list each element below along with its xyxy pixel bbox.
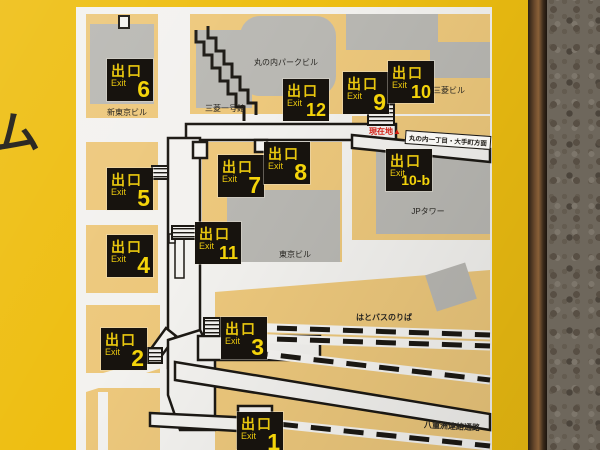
exit-badge-10: 出口Exit10 xyxy=(388,61,434,103)
exit-badge-5: 出口Exit5 xyxy=(107,168,153,210)
exit-number: 4 xyxy=(137,254,150,277)
exit-word-en: Exit xyxy=(241,431,256,441)
stub-exit7 xyxy=(193,142,207,158)
exit-number: 9 xyxy=(373,91,386,114)
exit-number: 5 xyxy=(137,187,150,210)
exit-number: 3 xyxy=(251,336,264,359)
building-label-marunouchi-park: 丸の内パークビル xyxy=(254,57,318,68)
exit-word-en: Exit xyxy=(222,174,237,184)
exit-number: 10-b xyxy=(401,173,430,187)
building-label-shintokyo: 新東京ビル xyxy=(107,107,147,118)
exit-number: 1 xyxy=(267,431,280,450)
exit-word-en: Exit xyxy=(111,78,126,88)
exit-badge-4: 出口Exit4 xyxy=(107,235,153,277)
exit-word-en: Exit xyxy=(199,241,214,251)
stairs-exit11 xyxy=(172,226,196,239)
exit-badge-8: 出口Exit8 xyxy=(264,142,310,184)
building-label-mitsubishi: 三菱ビル xyxy=(433,85,465,96)
exit-word-en: Exit xyxy=(287,98,302,108)
exit-word-en: Exit xyxy=(111,187,126,197)
building-label-ichigokan: 三菱一号館 xyxy=(205,103,245,114)
exit-word-en: Exit xyxy=(111,254,126,264)
area-label-hatobus: はとバスのりば xyxy=(356,312,412,323)
exit-number: 10 xyxy=(411,83,431,101)
exit-number: 12 xyxy=(306,101,326,119)
rooftop-detail xyxy=(119,16,129,28)
exit-word-en: Exit xyxy=(225,336,240,346)
building-shape-top-right xyxy=(346,14,438,50)
exit-badge-10b: 出口Exit10-b xyxy=(386,149,432,191)
exit-badge-1: 出口Exit1 xyxy=(237,412,283,450)
exit-word-en: Exit xyxy=(105,347,120,357)
exit-number: 2 xyxy=(131,347,144,370)
exit-badge-3: 出口Exit3 xyxy=(221,317,267,359)
exit-badge-12: 出口Exit12 xyxy=(283,79,329,121)
exit-badge-9: 出口Exit9 xyxy=(343,72,389,114)
exit-badge-6: 出口Exit6 xyxy=(107,59,153,101)
building-shape-mitsubishi xyxy=(430,42,490,78)
exit-number: 6 xyxy=(137,78,150,101)
stairs-exit5 xyxy=(152,166,168,179)
exit-number: 8 xyxy=(294,161,307,184)
exit-number: 7 xyxy=(248,174,261,197)
exit-word-en: Exit xyxy=(347,91,362,101)
building-label-tokyo-bldg: 東京ビル xyxy=(279,249,311,260)
stairs-exit3 xyxy=(204,318,220,336)
current-location-marker: 現在地▲ xyxy=(369,126,401,137)
exit-badge-11: 出口Exit11 xyxy=(195,222,241,264)
exit-word-en: Exit xyxy=(268,161,283,171)
building-label-jp-tower: JPタワー xyxy=(411,206,444,217)
exit-badge-2: 出口Exit2 xyxy=(101,328,147,370)
exit-word-en: Exit xyxy=(392,80,407,90)
building-shape-park-annex xyxy=(224,38,238,86)
photo-of-exit-map-sign: ム xyxy=(0,0,600,450)
exit-number: 11 xyxy=(219,244,238,262)
stairs-exit2 xyxy=(148,348,162,363)
exit-badge-7: 出口Exit7 xyxy=(218,155,264,197)
